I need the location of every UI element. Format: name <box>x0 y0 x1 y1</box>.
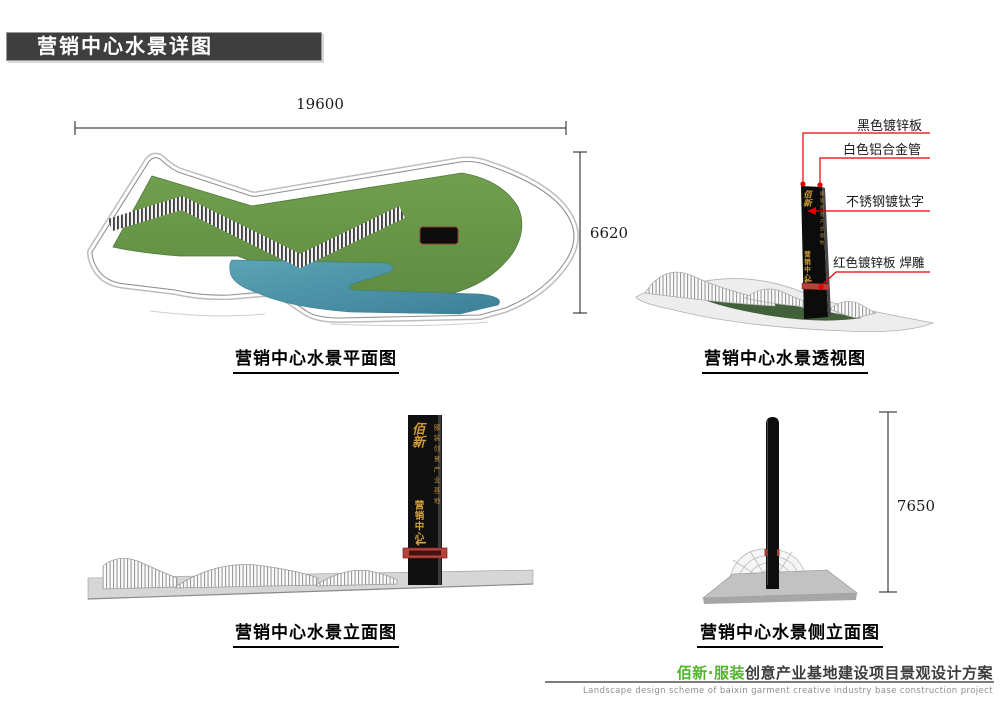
side-red-band-tick <box>765 549 768 556</box>
side-height-value: 7650 <box>894 497 938 515</box>
plan-height-value: 6620 <box>588 224 630 242</box>
elevation-view-caption: 营销中心水景立面图 <box>233 618 399 648</box>
footer-brand: 佰新·服装 <box>677 664 745 682</box>
footer-project-subtitle: Landscape design scheme of baixin garmen… <box>583 686 993 696</box>
annotation-steel-letters: 不锈钢镀钛字 <box>846 194 924 210</box>
signpost-arrow-icon: ← <box>415 536 427 550</box>
perspective-signpost-text: 佰新 服装创意产业基地 营销中心 ← <box>801 189 825 311</box>
leader-dot <box>817 182 822 187</box>
annotation-white-tube: 白色铝合金管 <box>843 142 921 158</box>
perspective-view-drawing: 黑色镀锌板 白色铝合金管 不锈钢镀钛字 红色镀锌板 焊雕 <box>630 100 940 345</box>
plan-view-drawing <box>60 85 645 345</box>
footer-project-title: 佰新·服装创意产业基地建设项目景观设计方案 <box>677 662 993 683</box>
plan-view-caption: 营销中心水景平面图 <box>233 344 399 374</box>
drawing-sheet: 营销中心水景详图 <box>0 0 1000 707</box>
signpost-tagline: 服装创意产业基地 <box>819 191 824 247</box>
elevation-view-drawing <box>80 400 540 610</box>
annotation-black-plate: 黑色镀锌板 <box>857 118 922 134</box>
leader-dot <box>800 181 805 186</box>
plan-width-value: 19600 <box>290 95 350 113</box>
signpost-arrow-icon: ← <box>804 277 812 287</box>
signpost-brand: 佰新 <box>410 422 423 448</box>
footer-project-name: 创意产业基地建设项目景观设计方案 <box>745 664 993 682</box>
elevation-signpost-text: 佰新 服装创意产业基地 营销中心 ← <box>409 420 442 552</box>
perspective-view-caption: 营销中心水景透视图 <box>702 344 868 374</box>
signpost-brand: 佰新 <box>802 190 811 207</box>
side-red-band-tick <box>777 549 780 556</box>
plan-width-dimension <box>75 121 566 135</box>
ground-line <box>150 311 265 316</box>
page-title: 营销中心水景详图 <box>6 32 322 61</box>
signpost-tagline: 服装创意产业基地 <box>433 424 440 508</box>
side-elevation-view-caption: 营销中心水景侧立面图 <box>697 618 883 648</box>
annotation-red-plate: 红色镀锌板 焊雕 <box>833 255 925 270</box>
plan-signpost-footprint <box>420 227 458 244</box>
elevation-slat-fence <box>103 558 397 589</box>
